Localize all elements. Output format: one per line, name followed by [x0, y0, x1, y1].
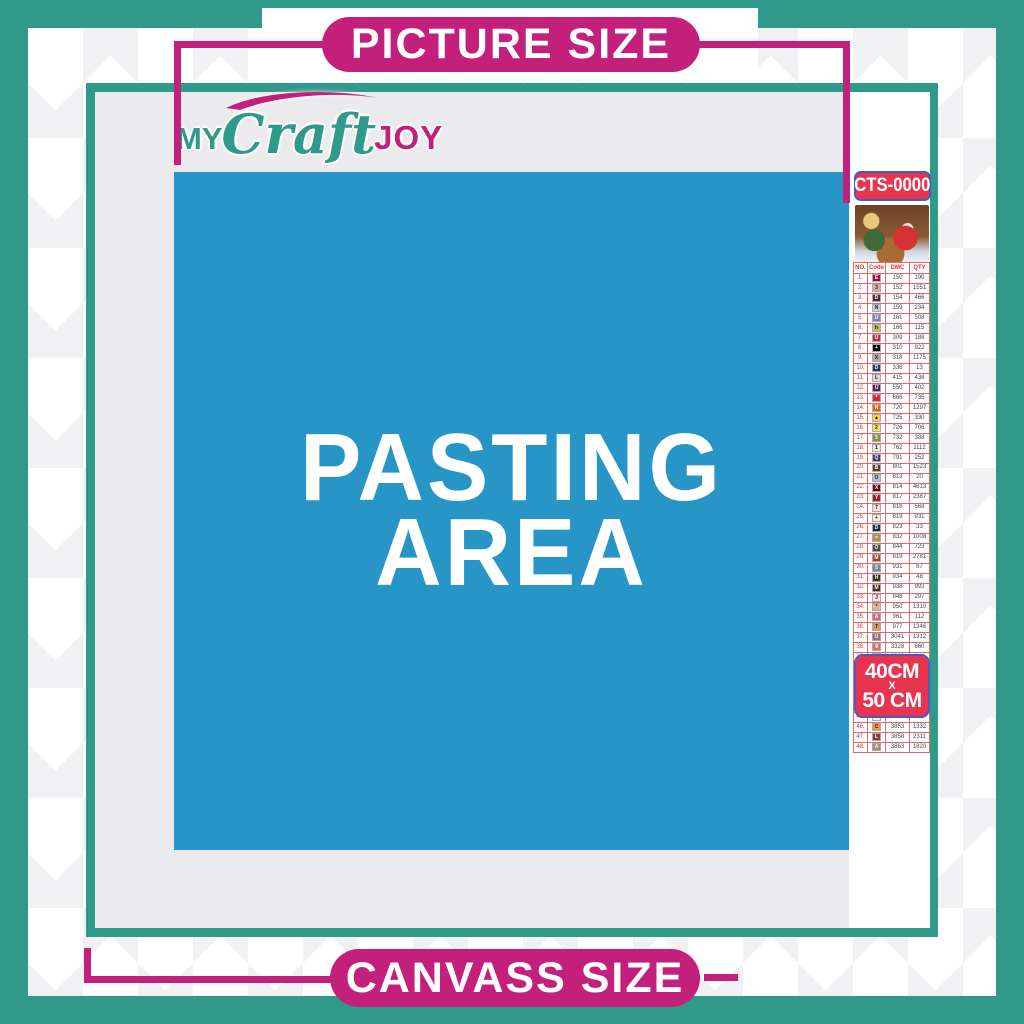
legend-cell-no: 33.: [854, 593, 868, 603]
legend-cell-no: 14.: [854, 403, 868, 413]
legend-cell-qty: 568: [910, 503, 930, 513]
legend-cell-no: 32.: [854, 583, 868, 593]
legend-cell-dmc: 3863: [886, 743, 910, 753]
legend-cell-qty: 1312: [910, 633, 930, 643]
color-swatch-icon: N: [872, 304, 881, 312]
product-thumbnail-image: [855, 205, 929, 262]
legend-cell-code: 5: [868, 563, 886, 573]
legend-cell-dmc: 819: [886, 513, 910, 523]
legend-cell-code: X: [868, 353, 886, 363]
canvass-size-label: CANVASS SIZE: [346, 954, 685, 1003]
legend-cell-dmc: 818: [886, 503, 910, 513]
legend-cell-qty: 388: [910, 433, 930, 443]
color-swatch-icon: 5: [872, 434, 881, 442]
legend-cell-qty: 402: [910, 383, 930, 393]
legend-row: 34.*9501310: [854, 603, 930, 613]
legend-cell-code: ▲: [868, 413, 886, 423]
legend-cell-code: O: [868, 543, 886, 553]
legend-cell-code: N: [868, 303, 886, 313]
legend-row: 28.O844723: [854, 543, 930, 553]
legend-header-dmc: DMC: [886, 263, 910, 274]
legend-cell-no: 11.: [854, 373, 868, 383]
legend-row: 30.593167: [854, 563, 930, 573]
logo-swoosh-icon: [222, 86, 382, 112]
color-swatch-icon: L: [872, 733, 881, 741]
legend-cell-no: 31.: [854, 573, 868, 583]
legend-cell-qty: 1332: [910, 723, 930, 733]
legend-cell-qty: 33: [910, 523, 930, 533]
legend-cell-dmc: 336: [886, 363, 910, 373]
logo-word-joy: JOY: [374, 119, 443, 157]
legend-cell-dmc: 415: [886, 373, 910, 383]
color-swatch-icon: Y: [872, 494, 881, 502]
legend-cell-dmc: 154: [886, 293, 910, 303]
legend-cell-code: Y: [868, 493, 886, 503]
legend-cell-dmc: 159: [886, 303, 910, 313]
legend-cell-dmc: 823: [886, 523, 910, 533]
legend-cell-no: 3.: [854, 293, 868, 303]
legend-cell-code: M: [868, 553, 886, 563]
legend-header-no: NO.: [854, 263, 868, 274]
legend-cell-dmc: 3328: [886, 643, 910, 653]
color-swatch-icon: D: [872, 524, 881, 532]
legend-cell-qty: 190: [910, 274, 930, 284]
legend-row: 26.D82333: [854, 523, 930, 533]
legend-row: 3.D154466: [854, 293, 930, 303]
color-swatch-icon: +: [872, 514, 881, 522]
product-template-image: PICTURE SIZE MY Craft JOY PASTING AREA C…: [0, 0, 1024, 1024]
legend-row: 27.=8321008: [854, 533, 930, 543]
legend-cell-no: 13.: [854, 393, 868, 403]
legend-cell-dmc: 732: [886, 433, 910, 443]
color-swatch-icon: O: [872, 474, 881, 482]
legend-row: 2.31521551: [854, 283, 930, 293]
top-left-bracket-horizontal: [177, 41, 327, 48]
legend-cell-qty: 112: [910, 613, 930, 623]
color-swatch-icon: H: [872, 574, 881, 582]
color-swatch-icon: =: [872, 534, 881, 542]
color-swatch-icon: E: [872, 274, 881, 282]
legend-row: 4.N159234: [854, 303, 930, 313]
legend-cell-qty: 723: [910, 543, 930, 553]
legend-cell-qty: 735: [910, 393, 930, 403]
legend-row: 47.L38582311: [854, 733, 930, 743]
legend-cell-no: 15.: [854, 413, 868, 423]
legend-cell-qty: 330: [910, 413, 930, 423]
legend-row: 16.2726706: [854, 423, 930, 433]
legend-cell-no: 7.: [854, 333, 868, 343]
legend-cell-code: 3: [868, 283, 886, 293]
legend-cell-qty: 4613: [910, 483, 930, 493]
legend-cell-qty: 1551: [910, 283, 930, 293]
legend-row: 6.h166115: [854, 323, 930, 333]
legend-cell-no: 25.: [854, 513, 868, 523]
color-swatch-icon: A: [872, 613, 881, 621]
legend-cell-qty: 1175: [910, 353, 930, 363]
legend-cell-dmc: 150: [886, 274, 910, 284]
legend-cell-qty: 115: [910, 323, 930, 333]
legend-cell-code: 1: [868, 443, 886, 453]
legend-cell-qty: 931: [910, 513, 930, 523]
color-swatch-icon: N: [872, 404, 881, 412]
color-swatch-icon: C: [872, 723, 881, 731]
legend-cell-no: 18.: [854, 443, 868, 453]
color-swatch-icon: A: [872, 743, 881, 751]
legend-cell-code: C: [868, 723, 886, 733]
logo-word-my: MY: [176, 121, 223, 157]
legend-header-code: Code: [868, 263, 886, 274]
size-height: 50 CM: [862, 691, 921, 710]
legend-cell-dmc: 844: [886, 543, 910, 553]
legend-cell-no: 23.: [854, 493, 868, 503]
legend-cell-code: 5: [868, 433, 886, 443]
brand-logo: MY Craft JOY: [176, 98, 443, 168]
legend-cell-no: 46.: [854, 723, 868, 733]
legend-cell-code: U: [868, 313, 886, 323]
legend-row: 18.17621112: [854, 443, 930, 453]
legend-cell-dmc: 762: [886, 443, 910, 453]
legend-cell-code: A: [868, 743, 886, 753]
legend-cell-dmc: 318: [886, 353, 910, 363]
legend-cell-dmc: 152: [886, 283, 910, 293]
product-code: CTS-0000: [854, 175, 930, 197]
color-swatch-icon: U: [872, 334, 881, 342]
color-swatch-icon: Q: [872, 454, 881, 462]
color-swatch-icon: 5: [872, 564, 881, 572]
pasting-area-line2: AREA: [375, 509, 648, 597]
legend-cell-no: 4.: [854, 303, 868, 313]
color-swatch-icon: X: [872, 484, 881, 492]
legend-row: 1.E150190: [854, 274, 930, 284]
legend-cell-dmc: 817: [886, 493, 910, 503]
color-swatch-icon: *: [872, 603, 881, 611]
legend-cell-qty: 48: [910, 573, 930, 583]
legend-row: 37.U30411312: [854, 633, 930, 643]
legend-cell-qty: 234: [910, 303, 930, 313]
legend-cell-dmc: 666: [886, 393, 910, 403]
legend-cell-code: L: [868, 733, 886, 743]
picture-size-label: PICTURE SIZE: [351, 20, 671, 69]
legend-cell-code: U: [868, 383, 886, 393]
legend-cell-qty: 13: [910, 363, 930, 373]
color-swatch-icon: 2: [872, 424, 881, 432]
legend-cell-dmc: 3853: [886, 723, 910, 733]
legend-row: 17.5732388: [854, 433, 930, 443]
legend-cell-dmc: 950: [886, 603, 910, 613]
legend-cell-qty: 508: [910, 313, 930, 323]
legend-cell-qty: 297: [910, 593, 930, 603]
legend-cell-qty: 2311: [910, 733, 930, 743]
pasting-area: PASTING AREA: [174, 172, 849, 850]
legend-cell-code: =: [868, 533, 886, 543]
color-swatch-icon: T: [872, 623, 881, 631]
legend-cell-no: 29.: [854, 553, 868, 563]
color-swatch-icon: M: [872, 554, 881, 562]
legend-cell-code: D: [868, 363, 886, 373]
legend-cell-code: D: [868, 293, 886, 303]
legend-cell-qty: 660: [910, 643, 930, 653]
legend-cell-dmc: 720: [886, 403, 910, 413]
legend-cell-code: U: [868, 333, 886, 343]
legend-cell-dmc: 813: [886, 473, 910, 483]
legend-cell-dmc: 725: [886, 413, 910, 423]
legend-cell-no: 28.: [854, 543, 868, 553]
legend-cell-code: 2: [868, 423, 886, 433]
legend-cell-qty: 1297: [910, 403, 930, 413]
legend-header-qty: QTY: [910, 263, 930, 274]
legend-row: 13.*666735: [854, 393, 930, 403]
color-swatch-icon: U: [872, 314, 881, 322]
legend-cell-no: 20.: [854, 463, 868, 473]
legend-row: 10.D33613: [854, 363, 930, 373]
legend-cell-qty: 922: [910, 343, 930, 353]
color-swatch-icon: 7: [872, 504, 881, 512]
legend-cell-no: 37.: [854, 633, 868, 643]
legend-row: 46.C38531332: [854, 723, 930, 733]
legend-cell-no: 34.: [854, 603, 868, 613]
color-swatch-icon: U: [872, 384, 881, 392]
legend-cell-no: 21.: [854, 473, 868, 483]
legend-cell-qty: 706: [910, 423, 930, 433]
legend-cell-qty: 1112: [910, 443, 930, 453]
legend-cell-no: 9.: [854, 353, 868, 363]
color-swatch-icon: J: [872, 594, 881, 602]
canvass-size-banner: CANVASS SIZE: [330, 949, 700, 1007]
legend-cell-qty: 438: [910, 373, 930, 383]
legend-row: 25.+819931: [854, 513, 930, 523]
legend-cell-dmc: 161: [886, 313, 910, 323]
color-swatch-icon: O: [872, 544, 881, 552]
legend-cell-no: 47.: [854, 733, 868, 743]
color-swatch-icon: ▲: [872, 414, 881, 422]
legend-row: 11.L415438: [854, 373, 930, 383]
legend-cell-dmc: 961: [886, 613, 910, 623]
legend-cell-no: 35.: [854, 613, 868, 623]
legend-cell-code: D: [868, 523, 886, 533]
legend-row: 23.Y8172387: [854, 493, 930, 503]
legend-cell-dmc: 801: [886, 463, 910, 473]
legend-cell-dmc: 977: [886, 623, 910, 633]
legend-cell-code: 9: [868, 643, 886, 653]
legend-cell-no: 36.: [854, 623, 868, 633]
color-swatch-icon: +: [872, 344, 881, 352]
legend-cell-no: 19.: [854, 453, 868, 463]
legend-cell-no: 16.: [854, 423, 868, 433]
legend-cell-no: 30.: [854, 563, 868, 573]
legend-cell-dmc: 832: [886, 533, 910, 543]
legend-cell-dmc: 166: [886, 323, 910, 333]
legend-cell-dmc: 3041: [886, 633, 910, 643]
legend-cell-code: *: [868, 603, 886, 613]
legend-cell-qty: 1820: [910, 743, 930, 753]
legend-cell-no: 38.: [854, 643, 868, 653]
legend-cell-code: T: [868, 623, 886, 633]
legend-row: 14.N7201297: [854, 403, 930, 413]
legend-cell-qty: 466: [910, 293, 930, 303]
color-swatch-icon: U: [872, 633, 881, 641]
legend-row: 21.O81320: [854, 473, 930, 483]
legend-cell-no: 1.: [854, 274, 868, 284]
legend-cell-qty: 1346: [910, 623, 930, 633]
legend-row: 9.X3181175: [854, 353, 930, 363]
legend-cell-no: 10.: [854, 363, 868, 373]
size-width: 40CM: [865, 662, 919, 681]
legend-cell-code: *: [868, 393, 886, 403]
canvas-size-badge: 40CM X 50 CM: [854, 654, 930, 718]
legend-cell-dmc: 310: [886, 343, 910, 353]
legend-cell-qty: 1008: [910, 533, 930, 543]
legend-cell-no: 5.: [854, 313, 868, 323]
legend-row: 19.Q791252: [854, 453, 930, 463]
legend-cell-code: M: [868, 583, 886, 593]
legend-cell-code: Q: [868, 453, 886, 463]
legend-cell-no: 6.: [854, 323, 868, 333]
legend-cell-code: J: [868, 593, 886, 603]
legend-header-row: NO. Code DMC QTY: [854, 263, 930, 274]
legend-cell-qty: 2781: [910, 553, 930, 563]
legend-cell-qty: 2387: [910, 493, 930, 503]
bottom-left-bracket-horizontal: [84, 976, 336, 983]
legend-row: 22.X8144613: [854, 483, 930, 493]
legend-cell-no: 27.: [854, 533, 868, 543]
legend-row: 48.A38631820: [854, 743, 930, 753]
legend-row: 20.B8011523: [854, 463, 930, 473]
legend-row: 24.7818568: [854, 503, 930, 513]
legend-cell-code: +: [868, 343, 886, 353]
legend-row: 7.U309188: [854, 333, 930, 343]
color-swatch-icon: X: [872, 354, 881, 362]
color-swatch-icon: M: [872, 584, 881, 592]
legend-cell-dmc: 309: [886, 333, 910, 343]
color-swatch-icon: 3: [872, 284, 881, 292]
legend-cell-code: E: [868, 274, 886, 284]
legend-row: 15.▲725330: [854, 413, 930, 423]
legend-row: 29.M9192781: [854, 553, 930, 563]
legend-cell-code: 7: [868, 503, 886, 513]
legend-cell-dmc: 931: [886, 563, 910, 573]
legend-cell-qty: 20: [910, 473, 930, 483]
legend-row: 31.H93448: [854, 573, 930, 583]
legend-cell-code: B: [868, 463, 886, 473]
legend-row: 8.+310922: [854, 343, 930, 353]
bottom-right-dash: [704, 974, 738, 981]
legend-cell-code: H: [868, 573, 886, 583]
legend-cell-dmc: 726: [886, 423, 910, 433]
legend-cell-code: h: [868, 323, 886, 333]
legend-cell-no: 12.: [854, 383, 868, 393]
color-swatch-icon: B: [872, 464, 881, 472]
legend-cell-qty: 188: [910, 333, 930, 343]
legend-cell-dmc: 948: [886, 593, 910, 603]
color-swatch-icon: D: [872, 364, 881, 372]
legend-row: 33.J948297: [854, 593, 930, 603]
legend-cell-no: 26.: [854, 523, 868, 533]
legend-cell-code: L: [868, 373, 886, 383]
color-swatch-icon: h: [872, 324, 881, 332]
legend-cell-no: 8.: [854, 343, 868, 353]
legend-cell-no: 22.: [854, 483, 868, 493]
legend-column: CTS-0000 NO. Code DMC QTY 1.E1501902.315…: [849, 92, 930, 928]
legend-cell-dmc: 791: [886, 453, 910, 463]
legend-cell-code: X: [868, 483, 886, 493]
picture-size-banner: PICTURE SIZE: [322, 17, 700, 72]
legend-cell-dmc: 814: [886, 483, 910, 493]
legend-row: 36.T9771346: [854, 623, 930, 633]
color-swatch-icon: 1: [872, 444, 881, 452]
color-swatch-icon: L: [872, 374, 881, 382]
legend-cell-qty: 252: [910, 453, 930, 463]
legend-cell-no: 17.: [854, 433, 868, 443]
legend-cell-code: A: [868, 613, 886, 623]
legend-row: 12.U550402: [854, 383, 930, 393]
legend-cell-qty: 67: [910, 563, 930, 573]
legend-cell-no: 2.: [854, 283, 868, 293]
legend-cell-no: 48.: [854, 743, 868, 753]
legend-cell-dmc: 919: [886, 553, 910, 563]
legend-cell-no: 24.: [854, 503, 868, 513]
color-swatch-icon: 9: [872, 643, 881, 651]
legend-cell-dmc: 3858: [886, 733, 910, 743]
legend-cell-dmc: 934: [886, 573, 910, 583]
legend-cell-qty: 993: [910, 583, 930, 593]
legend-row: 32.M938993: [854, 583, 930, 593]
legend-cell-code: +: [868, 513, 886, 523]
legend-cell-code: N: [868, 403, 886, 413]
top-left-bracket-vertical: [174, 41, 181, 165]
legend-cell-qty: 1523: [910, 463, 930, 473]
legend-cell-code: U: [868, 633, 886, 643]
top-right-bracket-vertical: [843, 41, 850, 203]
color-swatch-icon: *: [872, 394, 881, 402]
legend-row: 35.A961112: [854, 613, 930, 623]
legend-cell-code: O: [868, 473, 886, 483]
color-swatch-icon: D: [872, 294, 881, 302]
legend-row: 38.93328660: [854, 643, 930, 653]
top-right-bracket-horizontal: [697, 41, 850, 48]
product-code-badge: CTS-0000: [854, 171, 931, 201]
legend-cell-qty: 1310: [910, 603, 930, 613]
legend-row: 5.U161508: [854, 313, 930, 323]
legend-cell-dmc: 938: [886, 583, 910, 593]
legend-cell-dmc: 550: [886, 383, 910, 393]
